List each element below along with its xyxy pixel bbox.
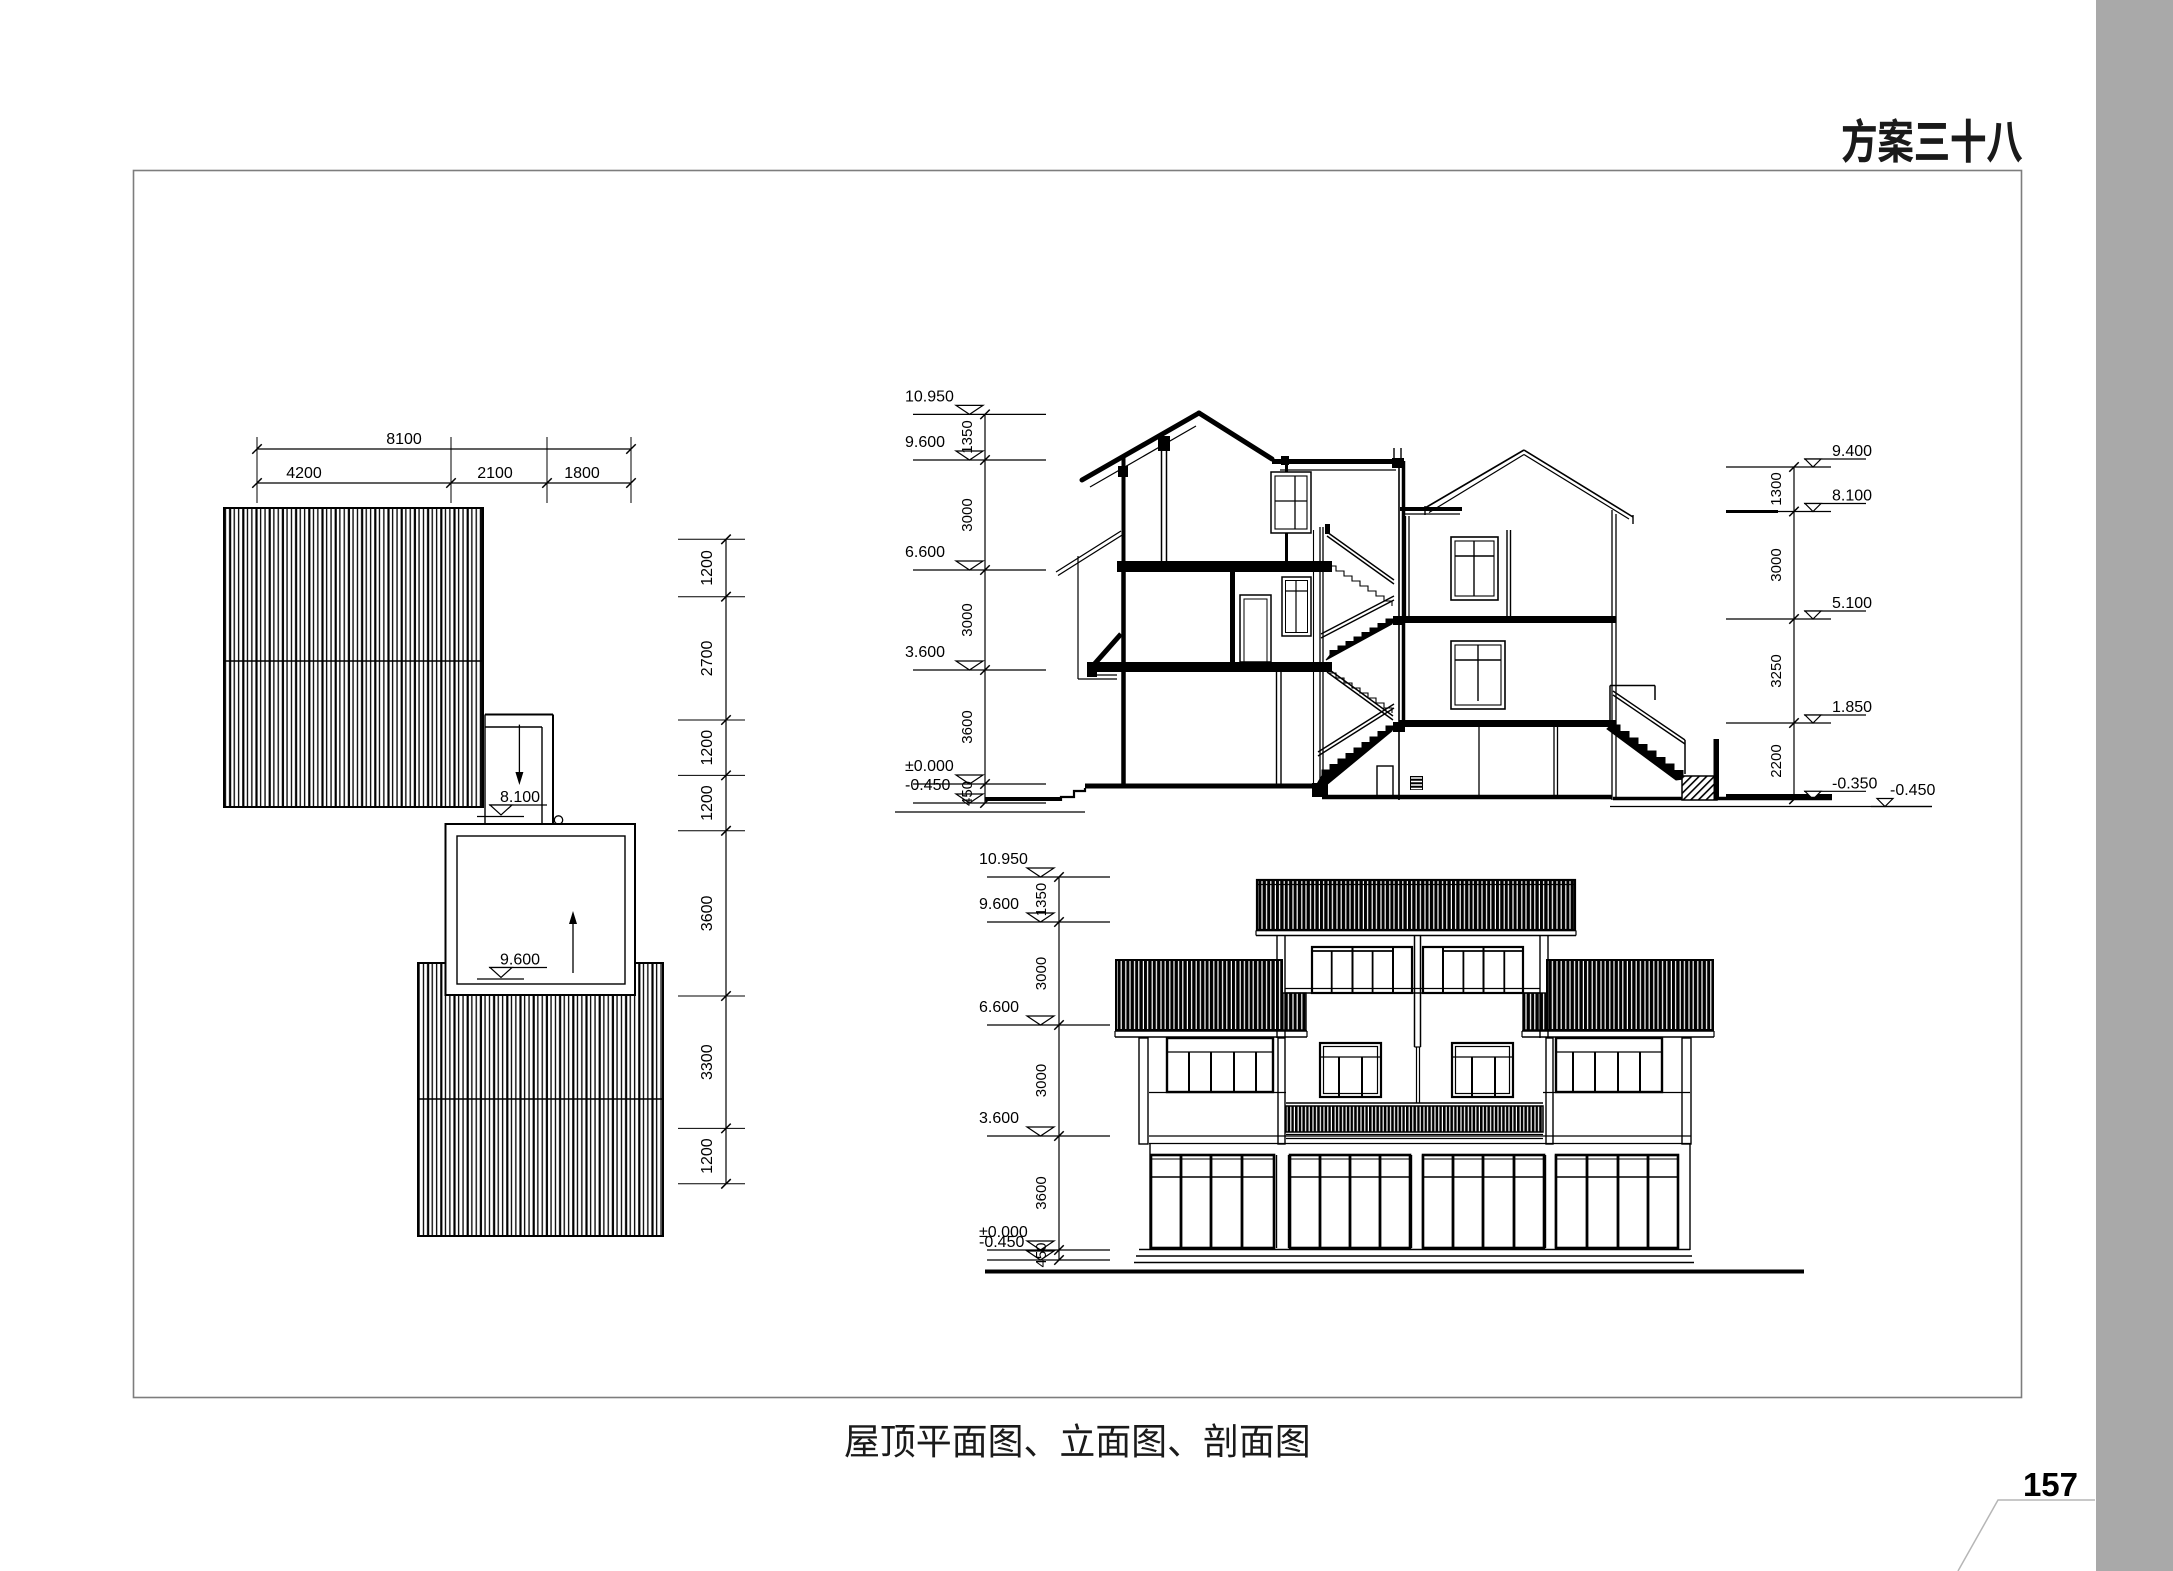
svg-text:2200: 2200 [1768, 744, 1785, 777]
svg-text:8.100: 8.100 [500, 789, 540, 806]
svg-text:3250: 3250 [1768, 654, 1785, 687]
svg-text:157: 157 [2023, 1466, 2078, 1503]
svg-text:3000: 3000 [959, 603, 976, 636]
svg-text:3000: 3000 [1033, 957, 1050, 990]
svg-text:3.600: 3.600 [979, 1110, 1019, 1127]
svg-text:1350: 1350 [959, 420, 976, 453]
svg-text:2100: 2100 [477, 465, 513, 482]
svg-text:3600: 3600 [699, 896, 716, 932]
svg-text:3000: 3000 [1033, 1064, 1050, 1097]
svg-text:-0.450: -0.450 [979, 1234, 1024, 1251]
svg-text:1200: 1200 [699, 550, 716, 586]
svg-text:2700: 2700 [699, 641, 716, 677]
svg-text:6.600: 6.600 [905, 544, 945, 561]
svg-text:3.600: 3.600 [905, 644, 945, 661]
svg-text:10.950: 10.950 [979, 851, 1028, 868]
svg-text:450: 450 [1033, 1242, 1050, 1267]
svg-text:8.100: 8.100 [1832, 488, 1872, 505]
svg-text:9.400: 9.400 [1832, 443, 1872, 460]
svg-text:1300: 1300 [1768, 472, 1785, 505]
svg-text:3300: 3300 [699, 1044, 716, 1080]
svg-text:3000: 3000 [1768, 548, 1785, 581]
svg-text:3000: 3000 [959, 498, 976, 531]
svg-text:1800: 1800 [564, 465, 600, 482]
svg-text:6.600: 6.600 [979, 999, 1019, 1016]
svg-text:-0.450: -0.450 [905, 777, 950, 794]
svg-text:-0.450: -0.450 [1890, 782, 1935, 799]
svg-text:-0.350: -0.350 [1832, 775, 1877, 792]
svg-text:1.850: 1.850 [1832, 699, 1872, 716]
svg-text:8100: 8100 [386, 431, 422, 448]
svg-text:3600: 3600 [959, 710, 976, 743]
svg-text:9.600: 9.600 [979, 896, 1019, 913]
svg-text:9.600: 9.600 [905, 434, 945, 451]
svg-text:3600: 3600 [1033, 1176, 1050, 1209]
svg-text:5.100: 5.100 [1832, 595, 1872, 612]
svg-text:10.950: 10.950 [905, 388, 954, 405]
svg-text:1200: 1200 [699, 730, 716, 766]
svg-text:1200: 1200 [699, 785, 716, 821]
svg-text:4200: 4200 [286, 465, 322, 482]
svg-text:±0.000: ±0.000 [905, 758, 954, 775]
svg-text:1350: 1350 [1033, 883, 1050, 916]
svg-text:9.600: 9.600 [500, 952, 540, 969]
svg-text:1200: 1200 [699, 1138, 716, 1174]
svg-text:450: 450 [959, 781, 976, 806]
